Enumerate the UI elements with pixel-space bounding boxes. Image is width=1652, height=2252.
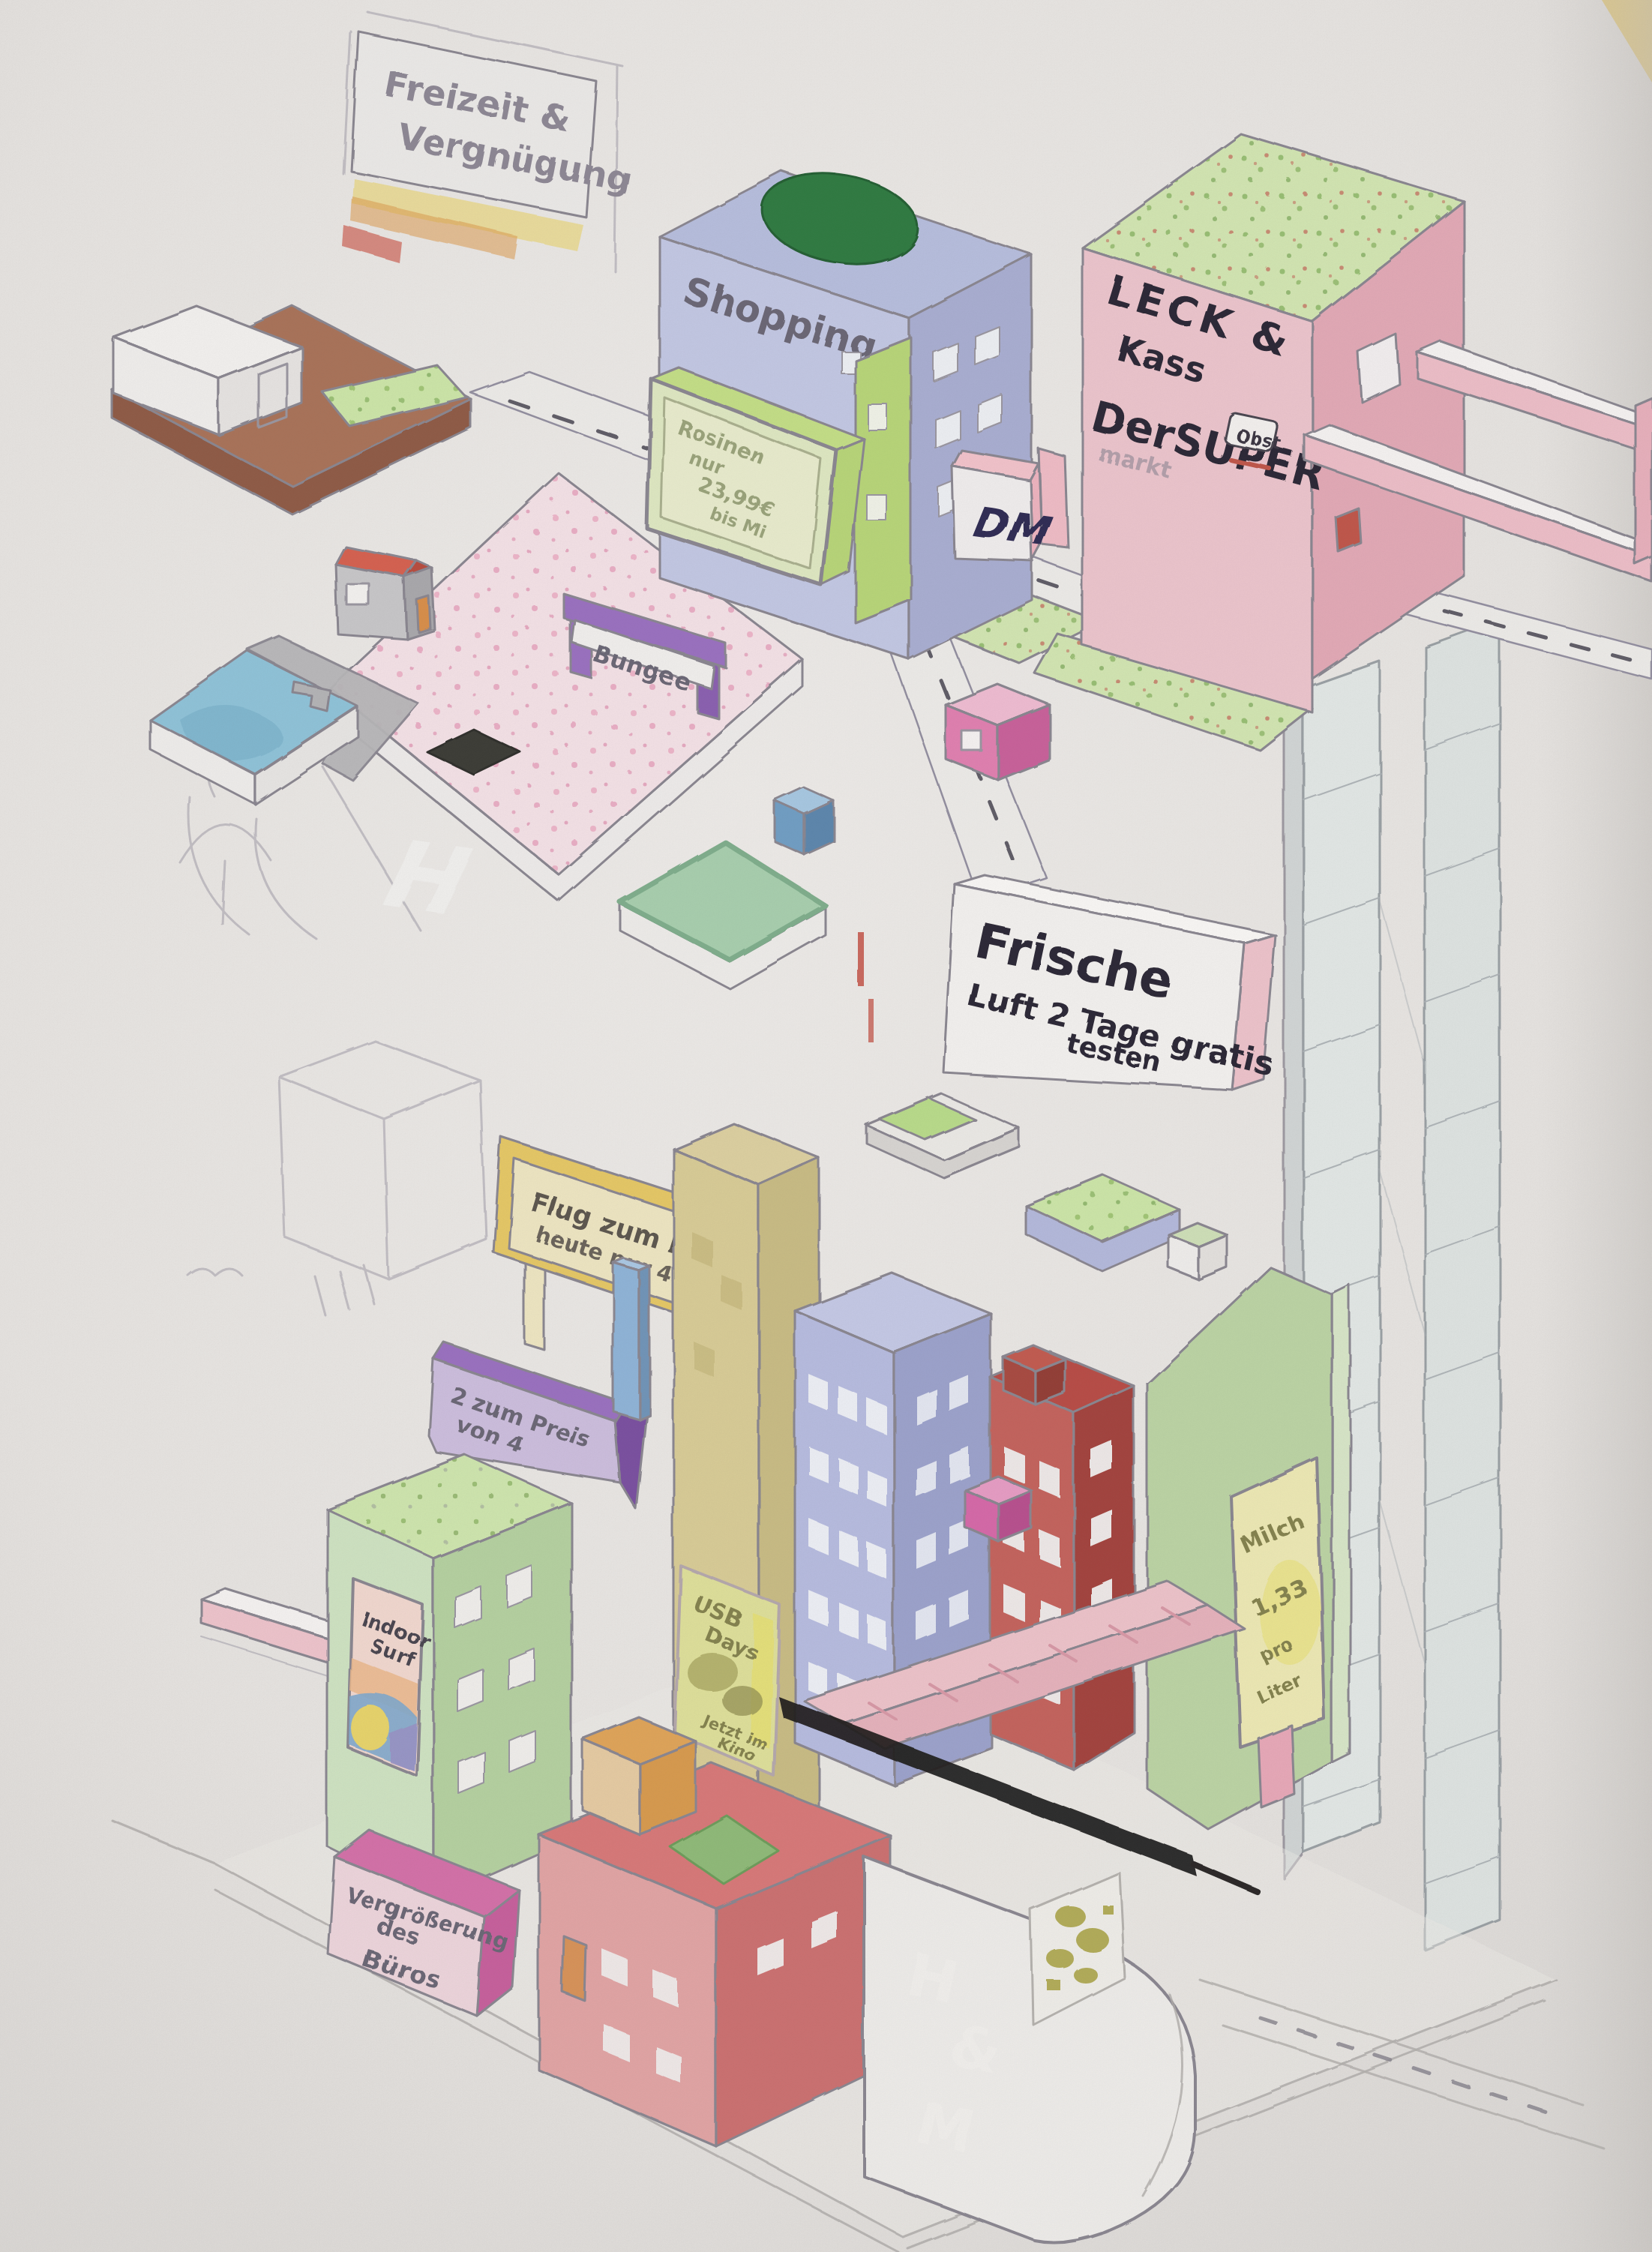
paper-grain — [0, 0, 1652, 2252]
isometric-city-drawing: Freizeit & Vergnügung — [0, 0, 1652, 2252]
